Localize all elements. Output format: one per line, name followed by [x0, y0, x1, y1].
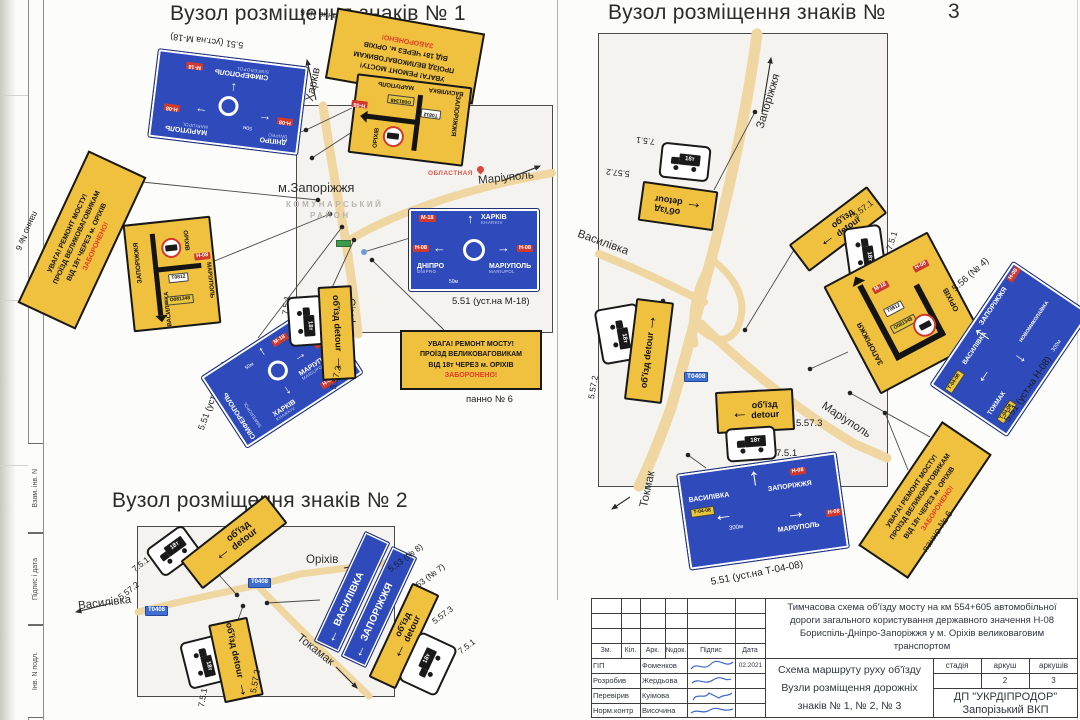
sign-city-mariupol: МАРІУПОЛЬMARIUPOL: [489, 263, 531, 275]
badge-n08: Н-08: [277, 117, 294, 126]
no-truck-sign-icon: [160, 237, 182, 259]
map-label-oblastnaya: ОБЛАСТНАЯ: [428, 170, 473, 177]
map-pin-blue-icon: [361, 249, 367, 255]
badge-o081348: О081348: [166, 294, 193, 305]
sign-city-dnipro: ДНІПРОDNIPRO: [417, 263, 444, 275]
arrow-down-icon: ↓: [280, 382, 293, 396]
badge-n08: Н-08: [164, 103, 181, 112]
tb-col-data: Дата: [735, 643, 765, 658]
sign-city-zaporizhzhia: ЗАПОРІЖЖЯ: [131, 231, 143, 283]
sign-city-zaporizhzhia: ЗАПОРІЖЖЯ: [768, 480, 813, 493]
badge-t0812: Т0812: [168, 272, 189, 283]
arrow-left-icon: ←: [386, 639, 409, 662]
sign-city-mariupol: МАРІУПОЛЬ: [777, 521, 820, 534]
tb-grid-line: [933, 688, 1078, 689]
arrow-down-icon: ↓: [236, 679, 248, 697]
sign-city-novomykolaivka: НОВОМИКОЛАЇВКА: [1018, 300, 1050, 343]
sign-city-zaporizhzhia: ЗАПОРІЖЖЯ: [447, 95, 461, 155]
sign-code-label: 7.5.1: [636, 135, 656, 147]
warning-line-prohibited: ЗАБОРОНЕНО!: [402, 371, 540, 380]
tb-scheme-line3: знаків № 1, № 2, № 3: [766, 698, 933, 714]
city-label-zaporizhzhia: м.Запоріжжя: [278, 180, 354, 195]
tb-sheet-value: 2: [981, 673, 1029, 688]
detour-text: об'їзд detour: [640, 332, 657, 389]
sign-city-simferopol: СІМФЕРОПОЛЬSIMFEROPOL: [215, 62, 270, 81]
route-badge-green-icon: [336, 240, 351, 247]
tb-col-ark: Арк.: [640, 643, 665, 658]
arrow-left-icon: ←: [684, 199, 703, 218]
badge-n08: Н-08: [517, 245, 533, 252]
truck-icon: 18т: [296, 305, 315, 336]
badge-m18: М-18: [186, 62, 203, 71]
tb-col-ndok: №док.: [665, 643, 687, 658]
badge-n08: Н-08: [351, 100, 368, 109]
badge-n08: Н-08: [413, 245, 429, 252]
tb-role: Норм.контр: [593, 703, 640, 718]
route-arrowhead-icon: [359, 110, 367, 123]
badge-o081348: О081348: [387, 95, 414, 107]
panno-label: панно № 6: [466, 394, 513, 405]
badge-m18: М-18: [872, 281, 890, 295]
tb-name: Жердьова: [642, 673, 687, 688]
warning-line: УВАГА! РЕМОНТ МОСТУ!: [402, 340, 540, 349]
badge-t0812: Т0812: [883, 300, 905, 317]
truck-icon: 18т: [735, 434, 766, 453]
tb-col-kil: Кіл.: [621, 643, 640, 658]
road-number-badge: Т0408: [248, 578, 271, 588]
node3-title-number: 3: [948, 0, 960, 24]
no-truck-sign-icon: [382, 125, 405, 148]
truck-limit-sign: 18т: [658, 141, 711, 182]
badge-n08: Н-08: [1006, 266, 1021, 283]
detour-text: об'їзд detour: [223, 622, 244, 679]
distance-label: 300м: [1050, 339, 1062, 353]
sign-code-label: 5.57.3: [796, 418, 822, 429]
arrow-left-icon: ←: [322, 626, 341, 645]
arrow-up-icon: ↑: [747, 465, 762, 490]
sign-city-mariupol: МАРІУПОЛЬMARIUPOL: [165, 119, 208, 136]
sign-city-kharkiv: ХАРКІВKHARKIV: [481, 214, 507, 226]
distance-label: 50м: [244, 361, 255, 371]
truck-icon: [387, 133, 400, 140]
badge-m18: М-18: [271, 333, 289, 348]
signature-icon: [689, 674, 735, 688]
badge-n08: Н-08: [194, 252, 211, 261]
arrow-right-icon: →: [194, 105, 208, 119]
tb-scheme-line2: Вузли розміщення дорожніх: [766, 680, 933, 696]
tb-col-zm: Зм.: [591, 643, 621, 658]
drawing-sheet: Взам. інв. N Підпис і дата Інв. N подл.: [0, 0, 1080, 720]
tb-sheet-label: аркуш: [981, 658, 1029, 673]
warning-panel: УВАГА! РЕМОНТ МОСТУ! ПРОЇЗД ВЕЛИКОВАГОВИ…: [400, 330, 542, 390]
distance-label: 300м: [729, 524, 744, 532]
signature-icon: [689, 689, 735, 703]
distance-label: 50м: [449, 279, 458, 285]
arrow-left-icon: ←: [349, 641, 368, 660]
arrow-up-icon: ↑: [255, 343, 268, 357]
tb-stage-label: стадія: [933, 658, 981, 673]
warning-line: ВІД 18т ЧЕРЕЗ м. ОРІХІВ: [402, 361, 540, 370]
signature-icon: [689, 659, 735, 673]
sign-city-mariupol: МАРІУПОЛЬ: [205, 262, 215, 299]
route-line: [153, 263, 201, 273]
sign-5-51-roundabout: М-18 ↑ ХАРКІВKHARKIV Н-08 ← ДНІПРОDNIPRO…: [408, 208, 540, 292]
tb-name: Височина: [642, 703, 687, 718]
tb-date: 02.2021: [736, 658, 765, 673]
tb-col-pidpys: Підпис: [687, 643, 735, 658]
badge-n08: Н-08: [912, 259, 929, 273]
roundabout-ring-icon: [463, 239, 485, 261]
tb-grid-line: [591, 628, 765, 629]
truck-limit-sign: 18т: [725, 425, 777, 462]
arrow-left-icon: ←: [257, 113, 271, 127]
tb-role: ГІП: [593, 658, 640, 673]
node3-title: Вузол розміщення знаків №: [608, 1, 886, 25]
arrow-up-icon: ↑: [647, 313, 658, 331]
arrow-up-icon: ↑: [467, 212, 474, 225]
tb-description: Тимчасова схема об'їзду мосту на км 554+…: [766, 598, 1078, 658]
tb-sheets-value: 3: [1029, 673, 1078, 688]
tb-org-line1: ДП "УКРДІПРОДОР": [933, 690, 1078, 704]
truck-icon: 18т: [192, 645, 216, 678]
distance-label: 50м: [243, 124, 253, 131]
tb-sheets-label: аркушів: [1029, 658, 1078, 673]
route-line: [366, 114, 420, 126]
tb-scheme-line1: Схема маршруту руху об'їзду: [766, 662, 933, 678]
arrow-down-icon: ↓: [1012, 351, 1030, 367]
detour-text: об'їздdetour: [653, 193, 683, 216]
district-label-line1: КОМУНАРСЬКИЙ: [286, 200, 383, 209]
arrow-left-icon: ←: [433, 241, 446, 254]
tb-name: Куімова: [642, 688, 687, 703]
roundabout-ring-icon: [264, 357, 292, 385]
tb-org-line2: Запорізький ВКП: [933, 703, 1078, 717]
sign-city-vasylivka: ВАСИЛІВКА: [428, 86, 464, 96]
badge-t0408: Т-04-08: [690, 506, 714, 518]
badge-t0408: Т-04-08: [944, 370, 964, 394]
road-number-badge: Т0408: [684, 372, 708, 382]
district-label-line2: РАЙОН: [310, 211, 351, 220]
badge-m18: М-18: [419, 215, 436, 222]
badge-n08: Н-08: [826, 508, 843, 517]
sign-city-mariupol: МАРІУПОЛЬ: [378, 80, 415, 90]
road-label-orikhiv: Оріхів: [306, 554, 338, 566]
arrow-right-icon: →: [784, 501, 807, 524]
arrow-left-icon: ←: [712, 503, 735, 526]
signature-icon: [689, 704, 735, 718]
arrow-down-icon: ↓: [229, 81, 237, 95]
arrow-left-icon: ←: [731, 403, 749, 421]
truck-icon: [918, 320, 931, 331]
sign-city-dnipro: ДНІПРОDNIPRO: [259, 130, 287, 145]
tb-role: Перевірив: [593, 688, 640, 703]
detour-text: об'їзд detour: [330, 295, 343, 352]
arrow-right-icon: →: [497, 241, 510, 254]
warning-line: ПРОЇЗД ВЕЛИКОВАГОВИКАМ: [402, 350, 540, 359]
tb-role: Розробив: [593, 673, 640, 688]
truck-icon: 18т: [669, 152, 701, 172]
sign-5-51-roundabout-flipped: ДНІПРОDNIPRO ← Н-08 МАРІУПОЛЬMARIUPOL → …: [147, 48, 309, 156]
truck-icon: 18т: [414, 647, 442, 681]
arrow-right-icon: →: [290, 346, 308, 364]
road-number-badge: Т0408: [145, 606, 168, 616]
sign-code-label: 5.51 (уст.на М-18): [452, 296, 530, 307]
tb-name: Фоменков: [642, 658, 687, 673]
sign-city-orikhiv: ОРІХІВ: [372, 127, 380, 148]
badge-t0812: Т0812: [420, 109, 441, 120]
roundabout-ring-icon: [217, 95, 239, 117]
sign-5-56-route-scheme: ЗАПОРІЖЖЯ ОРІХІВ МАРІУПОЛЬ ВАСИЛІВКА Н-0…: [348, 73, 473, 167]
tb-grid-line: [591, 613, 765, 614]
truck-icon: 18т: [609, 318, 631, 350]
detour-text: об'їздdetour: [750, 400, 779, 421]
arrow-left-icon: ←: [969, 362, 994, 387]
badge-n08: Н-08: [789, 467, 806, 476]
sign-5-56-route-scheme: ЗАПОРІЖЖЯ ОРІХІВ МАРІУПОЛЬ ВАСИЛІВКА Н-0…: [123, 216, 222, 333]
sign-city-orikhiv: ОРІХІВ: [182, 230, 190, 251]
truck-icon: [165, 244, 178, 251]
